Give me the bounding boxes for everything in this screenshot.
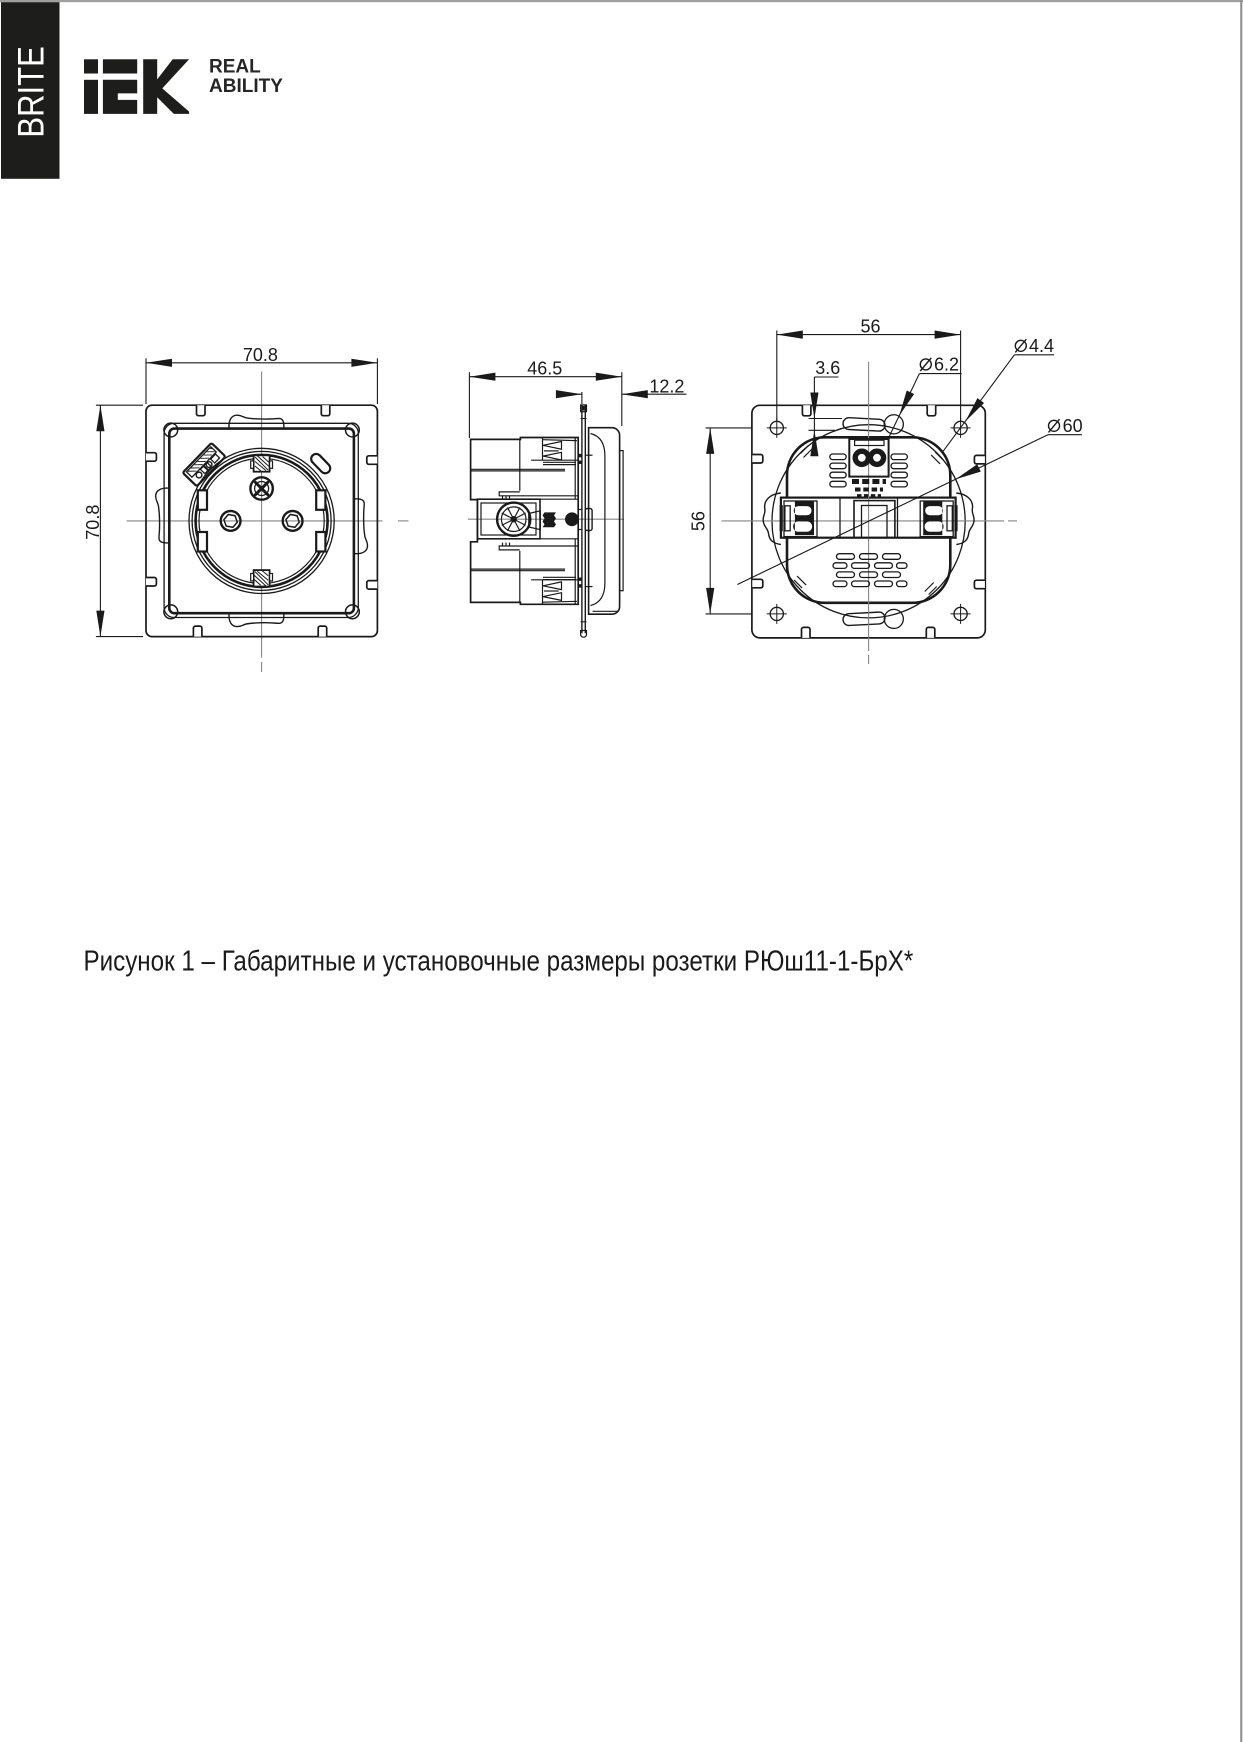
- svg-text:56: 56: [689, 511, 709, 531]
- svg-text:70.8: 70.8: [243, 345, 278, 365]
- svg-text:3.6: 3.6: [815, 358, 840, 378]
- svg-text:6.2: 6.2: [934, 355, 959, 375]
- svg-text:56: 56: [861, 316, 881, 336]
- svg-text:12.2: 12.2: [649, 376, 684, 396]
- svg-text:ABILITY: ABILITY: [209, 76, 283, 97]
- svg-text:46.5: 46.5: [527, 359, 562, 379]
- svg-text:70.8: 70.8: [83, 505, 103, 540]
- svg-text:BRITE: BRITE: [11, 46, 52, 137]
- svg-text:REAL: REAL: [209, 57, 261, 78]
- svg-text:4.4: 4.4: [1029, 336, 1054, 356]
- svg-text:Рисунок 1 – Габаритные и устан: Рисунок 1 – Габаритные и установочные ра…: [84, 945, 914, 978]
- svg-text:60: 60: [1063, 416, 1083, 436]
